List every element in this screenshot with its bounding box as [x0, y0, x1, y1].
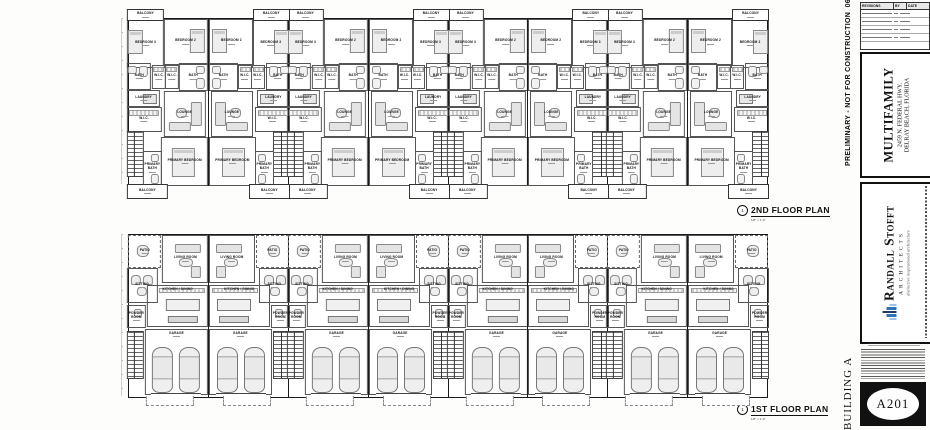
room-laundry: LAUNDRY [736, 90, 769, 107]
car-icon [217, 347, 238, 393]
townhouse-unit-3: BALCONYBEDROOM 2BEDROOM 3BATHW.I.C.W.I.C… [288, 19, 368, 185]
room-label: LIVING ROOM [220, 256, 243, 261]
room-bath: BATH [127, 63, 151, 90]
furniture-fix [418, 154, 426, 162]
furniture-table [536, 299, 570, 311]
room-balcony: BALCONY [606, 9, 643, 21]
room-lounge: LOUNGE [530, 91, 572, 137]
furniture-fix [311, 174, 319, 184]
stairs [127, 331, 144, 379]
furniture-fix [372, 78, 381, 89]
room-wic: W.I.C. [644, 65, 658, 89]
room-label: W.I.C. [633, 74, 643, 79]
car-icon [312, 347, 333, 393]
furniture-fix [577, 154, 585, 162]
room-label: PATIO [587, 249, 597, 254]
room-label: BEDROOM 3 [615, 41, 636, 46]
car-icon [339, 347, 360, 393]
room-wic: W.I.C. [287, 107, 322, 132]
furniture-shelf [632, 67, 643, 72]
room-label: PATIO [299, 249, 309, 254]
room-label: PRIMARY BATH [575, 163, 592, 172]
room-label: LIVING ROOM [540, 256, 563, 261]
room-label: PATIO [139, 249, 149, 254]
room-label: SITTING [587, 283, 601, 288]
room-wic: W.I.C. [606, 107, 641, 132]
revision-row [861, 18, 929, 26]
car-icon [631, 347, 652, 393]
room-laundry: LAUNDRY [127, 90, 160, 107]
room-garage: GARAGE [145, 329, 208, 395]
room-bath: BATH [745, 63, 769, 90]
room-bath: BATH [688, 63, 717, 91]
room-label: W.I.C. [747, 117, 757, 122]
room-label: PATIO [427, 249, 437, 254]
room-label: BATH [698, 74, 707, 79]
stairs [606, 131, 623, 177]
townhouse-unit-4: LIVING ROOMPATIOSITTINGKITCHEN / DININGP… [368, 235, 448, 397]
furniture-fix [196, 78, 205, 89]
furniture-sofa [535, 244, 561, 253]
room-living: LIVING ROOM [369, 235, 415, 283]
room-primary_bath: PRIMARY BATH [415, 151, 434, 185]
room-kitchen: KITCHEN / DINING [688, 285, 749, 327]
stairs [287, 131, 304, 177]
room-label: LOUNGE [384, 111, 399, 116]
room-label: GARAGE [552, 332, 567, 337]
furniture-table [217, 299, 251, 311]
furniture-fix [675, 78, 684, 89]
room-wic: W.I.C. [238, 65, 252, 89]
townhouse-unit-1: LIVING ROOMPATIOSITTINGKITCHEN / DININGP… [129, 235, 208, 397]
room-label: BEDROOM 3 [136, 41, 157, 46]
furniture-fix [258, 154, 266, 162]
room-label: BEDROOM 2 [541, 39, 562, 44]
furniture-sofa [386, 122, 408, 131]
room-living: LIVING ROOM [209, 235, 255, 283]
room-label: BATH [454, 74, 463, 79]
preliminary-stamp: PRELIMINARY - NOT FOR CONSTRUCTION 06-06… [845, 6, 857, 166]
room-bath: BATH [606, 63, 630, 90]
room-label: LIVING ROOM [700, 256, 723, 261]
furniture-fix [691, 78, 700, 89]
plan-element [465, 396, 513, 406]
plan-element [306, 396, 354, 406]
plan-scale: 1/8" = 1'-0" [751, 417, 828, 421]
room-bedroom2: BEDROOM 2 [163, 19, 208, 65]
room-label: W.I.C. [240, 74, 250, 79]
drawing-sheet: BALCONYBEDROOM 2BEDROOM 3BATHW.I.C.W.I.C… [0, 0, 930, 430]
room-bedroom2: BEDROOM 2 [642, 19, 687, 65]
room-balcony: BALCONY [253, 9, 290, 21]
room-label: KITCHEN / DINING [703, 288, 733, 293]
furniture-shelf [559, 67, 570, 72]
furniture-shelf [719, 67, 730, 72]
car-icon [498, 347, 519, 393]
room-label: SITTING [136, 283, 150, 288]
room-label: PATIO [619, 249, 629, 254]
furniture-fix [151, 154, 159, 162]
room-bath: BATH [658, 63, 687, 91]
room-primary_bedroom: PRIMARY BEDROOM [161, 137, 208, 186]
room-label: PATIO [267, 249, 277, 254]
furniture-sofa [654, 244, 680, 253]
furniture-fix [630, 174, 638, 184]
room-label: SITTING [615, 283, 629, 288]
room-garage: GARAGE [305, 329, 368, 395]
stairs [446, 131, 463, 177]
room-label: BALCONY [261, 189, 278, 194]
room-label: W.I.C. [400, 74, 410, 79]
furniture-sofa [175, 244, 201, 253]
furniture-sofa [648, 122, 670, 131]
room-label: LAUNDRY [295, 96, 312, 101]
car-icon [658, 347, 679, 393]
furniture-shelf [153, 67, 164, 72]
room-label: SITTING [747, 283, 761, 288]
room-label: LIVING ROOM [493, 256, 516, 261]
room-kitchen: KITCHEN / DINING [528, 285, 589, 327]
furniture-fix [258, 174, 266, 184]
room-label: PRIMARY BEDROOM [375, 159, 409, 164]
furniture-island [698, 316, 728, 323]
furniture-fix [531, 78, 540, 89]
room-label: BATH [219, 74, 228, 79]
room-label: POWDER ROOM [128, 312, 145, 321]
room-label: W.I.C. [732, 74, 742, 79]
room-label: BATH [294, 74, 303, 79]
room-label: BALCONY [582, 12, 599, 17]
room-wic: W.I.C. [415, 107, 450, 132]
plan-element [542, 396, 590, 406]
room-label: PRIMARY BATH [144, 163, 161, 172]
first-floor-plan-label: 1 1ST FLOOR PLAN 1/8" = 1'-0" [737, 404, 828, 421]
furniture-shelf [400, 67, 411, 72]
dimension-line [121, 18, 123, 184]
room-bath: BATH [209, 63, 238, 91]
sheet-number-box: A201 [860, 382, 926, 426]
room-kitchen: KITCHEN / DINING [626, 285, 687, 327]
room-wic: W.I.C. [398, 65, 412, 89]
room-wic: W.I.C. [325, 65, 339, 89]
room-wic: W.I.C. [312, 65, 326, 89]
room-label: POWDER ROOM [751, 312, 768, 321]
room-label: BEDROOM 3 [295, 41, 316, 46]
room-bath: BATH [498, 63, 527, 91]
room-label: BATH [614, 74, 623, 79]
room-label: W.I.C. [459, 117, 469, 122]
room-label: BEDROOM 2 [495, 39, 516, 44]
room-lounge: LOUNGE [690, 91, 732, 137]
room-label: BEDROOM 2 [335, 39, 356, 44]
room-label: LIVING ROOM [653, 256, 676, 261]
room-kitchen: KITCHEN / DINING [209, 285, 270, 327]
room-label: PRIMARY BEDROOM [215, 159, 249, 164]
townhouse-unit-6: LIVING ROOMPATIOSITTINGKITCHEN / DININGP… [527, 235, 607, 397]
room-label: PATIO [459, 249, 469, 254]
room-label: LOUNGE [337, 111, 352, 116]
room-label: LOUNGE [178, 111, 193, 116]
room-label: BALCONY [740, 189, 757, 194]
furniture-island [647, 316, 677, 323]
furniture-gdoor [535, 393, 585, 396]
project-address-line2: DELRAY BEACH, FLORIDA [905, 58, 911, 173]
room-label: GARAGE [488, 332, 503, 337]
room-bath: BATH [369, 63, 398, 91]
furniture-shelf [166, 67, 177, 72]
room-powder: POWDER ROOM [287, 305, 306, 328]
room-label: BEDROOM 2 [654, 39, 675, 44]
furniture-shelf [253, 67, 264, 72]
room-label: W.I.C. [253, 74, 263, 79]
room-label: PRIMARY BEDROOM [646, 159, 680, 164]
room-label: LIVING ROOM [380, 256, 403, 261]
room-powder: POWDER ROOM [606, 305, 625, 328]
disclaimer-text [861, 349, 925, 379]
firm-address-vertical-text [925, 186, 927, 338]
room-bedroom2: BEDROOM 2 [688, 19, 733, 65]
furniture-tbl [270, 287, 280, 296]
room-primary_bath: PRIMARY BATH [303, 151, 322, 185]
furniture-sofa [695, 244, 721, 253]
room-label: KITCHEN / DINING [544, 288, 574, 293]
room-label: W.I.C. [167, 74, 177, 79]
furniture-gdoor [470, 393, 520, 396]
room-label: BATH [593, 74, 602, 79]
room-label: LAUNDRY [455, 96, 472, 101]
room-label: BALCONY [458, 189, 475, 194]
furniture-shelf [645, 67, 656, 72]
room-laundry: LAUNDRY [606, 90, 639, 107]
room-kitchen: KITCHEN / DINING [466, 285, 527, 327]
room-wic: W.I.C. [631, 65, 645, 89]
room-kitchen: KITCHEN / DINING [147, 285, 208, 327]
room-lounge: LOUNGE [371, 91, 413, 137]
furniture-table [485, 299, 519, 311]
room-label: BATH [349, 74, 358, 79]
room-label: BATH [668, 74, 677, 79]
room-wic: W.I.C. [411, 65, 425, 89]
furniture-sofa [226, 122, 248, 131]
furniture-fix [737, 174, 745, 184]
room-label: BALCONY [616, 12, 633, 17]
room-balcony: BALCONY [127, 9, 164, 21]
furniture-sofa [695, 266, 705, 278]
plan-element [702, 396, 750, 406]
room-label: BEDROOM 3 [420, 41, 441, 46]
room-label: GARAGE [169, 332, 184, 337]
room-bath: BATH [446, 63, 470, 90]
date-col: DATE [906, 3, 929, 9]
townhouse-unit-7: BALCONYBEDROOM 2BEDROOM 3BATHW.I.C.W.I.C… [607, 19, 687, 185]
room-label: LAUNDRY [614, 96, 631, 101]
room-label: BALCONY [139, 189, 156, 194]
furniture-gdoor [630, 393, 680, 396]
townhouse-unit-8: LIVING ROOMPATIOSITTINGKITCHEN / DININGP… [687, 235, 767, 397]
room-living: LIVING ROOM [162, 235, 208, 283]
room-patio: PATIO [256, 235, 289, 268]
room-label: LAUNDRY [425, 96, 442, 101]
car-icon [179, 347, 200, 393]
furniture-island [487, 316, 517, 323]
room-garage: GARAGE [464, 329, 527, 395]
room-label: BALCONY [423, 12, 440, 17]
furniture-sofa [670, 102, 681, 126]
room-primary_bedroom: PRIMARY BEDROOM [528, 137, 575, 186]
room-laundry: LAUNDRY [446, 90, 479, 107]
room-primary_bath: PRIMARY BATH [143, 151, 162, 185]
room-label: BALCONY [421, 189, 438, 194]
room-label: BATH [134, 74, 143, 79]
furniture-table [645, 299, 679, 311]
furniture-tbl [749, 287, 759, 296]
room-living: LIVING ROOM [641, 235, 687, 283]
room-wic: W.I.C. [730, 65, 744, 89]
room-label: LAUNDRY [744, 96, 761, 101]
room-bedroom2: BEDROOM 2 [369, 19, 414, 65]
room-label: SITTING [427, 283, 441, 288]
room-label: W.I.C. [268, 117, 278, 122]
room-wic: W.I.C. [570, 65, 584, 89]
room-label: BEDROOM 2 [175, 39, 196, 44]
room-powder: POWDER ROOM [750, 305, 769, 328]
room-label: BEDROOM 2 [700, 39, 721, 44]
room-balcony: BALCONY [446, 9, 483, 21]
room-label: PRIMARY BATH [304, 163, 321, 172]
room-wic: W.I.C. [717, 65, 731, 89]
room-primary_bath: PRIMARY BATH [734, 151, 753, 185]
room-balcony: BALCONY [287, 9, 324, 21]
room-label: PRIMARY BEDROOM [167, 159, 201, 164]
room-label: SITTING [295, 283, 309, 288]
room-label: BEDROOM 3 [740, 41, 761, 46]
building-label: BUILDING A [842, 344, 856, 430]
car-icon [536, 347, 557, 393]
furniture-gdoor [376, 393, 426, 396]
skyline-logo-icon [883, 304, 897, 321]
room-wic: W.I.C. [255, 107, 290, 132]
license-number-text [868, 343, 920, 346]
townhouse-unit-2: LIVING ROOMPATIOSITTINGKITCHEN / DININGP… [208, 235, 288, 397]
room-balcony: BALCONY [572, 9, 609, 21]
room-kitchen: KITCHEN / DINING [307, 285, 368, 327]
car-icon [471, 347, 492, 393]
room-label: LOUNGE [225, 111, 240, 116]
room-label: LAUNDRY [265, 96, 282, 101]
room-label: LIVING ROOM [173, 256, 196, 261]
stairs [127, 131, 144, 177]
room-label: BALCONY [618, 189, 635, 194]
revision-row [861, 10, 929, 18]
room-lounge: LOUNGE [211, 91, 253, 137]
furniture-shelf [240, 67, 251, 72]
room-wic: W.I.C. [574, 107, 609, 132]
room-balcony: BALCONY [249, 184, 290, 199]
project-address-line1: 2459 N. FEDERAL HWY. [898, 58, 904, 173]
room-label: W.I.C. [619, 117, 629, 122]
room-label: PRIMARY BATH [623, 163, 640, 172]
furniture-sofa [510, 266, 520, 278]
furniture-sofa [670, 266, 680, 278]
room-lounge: LOUNGE [483, 91, 525, 137]
room-balcony: BALCONY [446, 184, 487, 199]
furniture-sofa [535, 266, 545, 278]
second-floor-plan-label: 1 2ND FLOOR PLAN 1/8" = 1'-0" [737, 205, 830, 222]
townhouse-unit-4: BALCONYBEDROOM 2BEDROOM 3BATHW.I.C.W.I.C… [368, 19, 448, 185]
room-label: POWDER ROOM [591, 312, 608, 321]
furniture-tbl [430, 287, 440, 296]
room-living: LIVING ROOM [528, 235, 574, 283]
furniture-sofa [216, 244, 242, 253]
room-garage: GARAGE [528, 329, 591, 395]
room-label: W.I.C. [587, 117, 597, 122]
room-label: BATH [379, 74, 388, 79]
room-bedroom3: BEDROOM 3 [412, 19, 450, 68]
room-label: W.I.C. [299, 117, 309, 122]
room-balcony: BALCONY [732, 9, 769, 21]
furniture-gdoor [151, 393, 201, 396]
revision-table: REVISIONS BY DATE [860, 2, 930, 50]
room-wic: W.I.C. [557, 65, 571, 89]
furniture-sofa [351, 102, 362, 126]
townhouse-unit-3: LIVING ROOMPATIOSITTINGKITCHEN / DININGP… [288, 235, 368, 397]
furniture-fix [470, 174, 478, 184]
room-label: W.I.C. [327, 74, 337, 79]
revision-row [861, 26, 929, 34]
room-garage: GARAGE [369, 329, 432, 395]
room-label: BALCONY [137, 12, 154, 17]
room-label: BALCONY [742, 12, 759, 17]
room-label: W.I.C. [413, 74, 423, 79]
firm-tagline: distinctive inspirational architecture [906, 188, 911, 338]
room-living: LIVING ROOM [481, 235, 527, 283]
room-garage: GARAGE [624, 329, 687, 395]
furniture-shelf [732, 67, 743, 72]
furniture-tbl [616, 287, 626, 296]
furniture-shelf [472, 67, 483, 72]
room-bedroom2: BEDROOM 2 [528, 19, 573, 65]
room-label: POWDER ROOM [288, 312, 305, 321]
furniture-tbl [137, 287, 147, 296]
room-label: PRIMARY BEDROOM [535, 159, 569, 164]
car-icon [696, 347, 717, 393]
room-label: GARAGE [233, 332, 248, 337]
room-bedroom3: BEDROOM 3 [571, 19, 609, 68]
furniture-sofa [351, 266, 361, 278]
room-label: BATH [433, 74, 442, 79]
stairs [446, 331, 463, 379]
room-label: BATH [538, 74, 547, 79]
room-patio: PATIO [735, 235, 768, 268]
townhouse-unit-1: BALCONYBEDROOM 2BEDROOM 3BATHW.I.C.W.I.C… [129, 19, 208, 185]
room-laundry: LAUNDRY [576, 90, 609, 107]
room-label: W.I.C. [560, 74, 570, 79]
stairs [752, 331, 769, 379]
furniture-fix [470, 154, 478, 162]
room-bath: BATH [528, 63, 557, 91]
room-label: KITCHEN / DINING [322, 288, 352, 293]
room-label: SITTING [268, 283, 282, 288]
room-primary_bedroom: PRIMARY BEDROOM [369, 137, 416, 186]
room-bedroom2: BEDROOM 2 [323, 19, 368, 65]
room-bedroom2: BEDROOM 2 [209, 19, 254, 65]
firm-name: Randall Stofft [882, 206, 898, 301]
room-label: LOUNGE [657, 111, 672, 116]
room-label: BALCONY [263, 12, 280, 17]
room-label: BEDROOM 3 [580, 41, 601, 46]
room-lounge: LOUNGE [643, 91, 685, 137]
furniture-island [538, 316, 568, 323]
